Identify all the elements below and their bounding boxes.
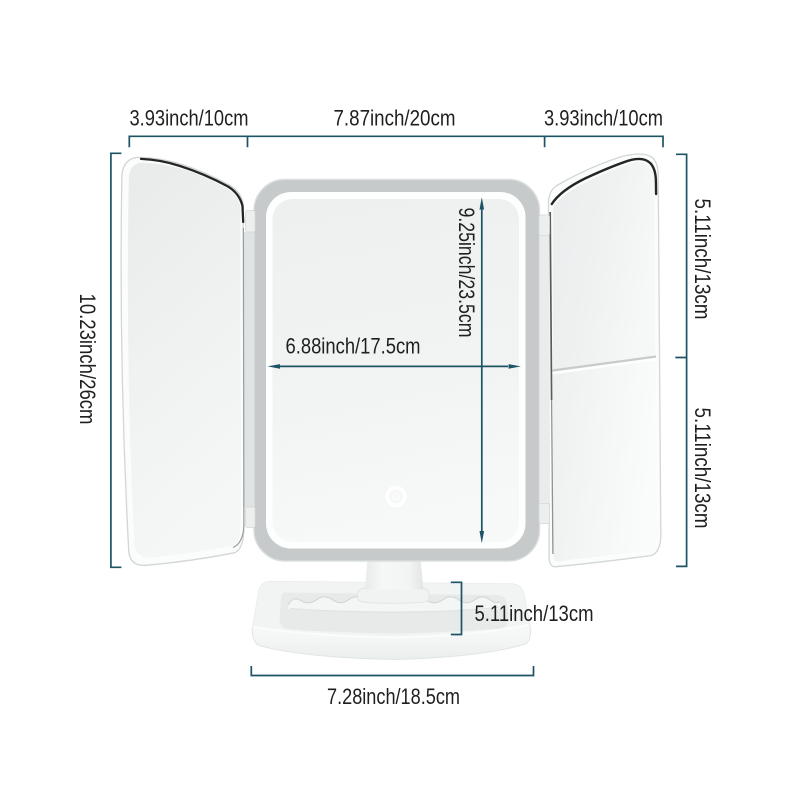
svg-text:6.88inch/17.5cm: 6.88inch/17.5cm — [286, 334, 421, 359]
svg-text:7.28inch/18.5cm: 7.28inch/18.5cm — [327, 684, 460, 709]
svg-text:5.11inch/13cm: 5.11inch/13cm — [690, 199, 715, 320]
svg-text:7.87inch/20cm: 7.87inch/20cm — [334, 106, 456, 131]
svg-text:5.11inch/13cm: 5.11inch/13cm — [690, 408, 715, 529]
svg-text:10.23inch/26cm: 10.23inch/26cm — [75, 294, 100, 425]
svg-text:3.93inch/10cm: 3.93inch/10cm — [130, 106, 249, 131]
svg-text:3.93inch/10cm: 3.93inch/10cm — [544, 106, 663, 131]
svg-text:5.11inch/13cm: 5.11inch/13cm — [475, 601, 594, 626]
svg-text:9.25inch/23.5cm: 9.25inch/23.5cm — [454, 208, 479, 338]
